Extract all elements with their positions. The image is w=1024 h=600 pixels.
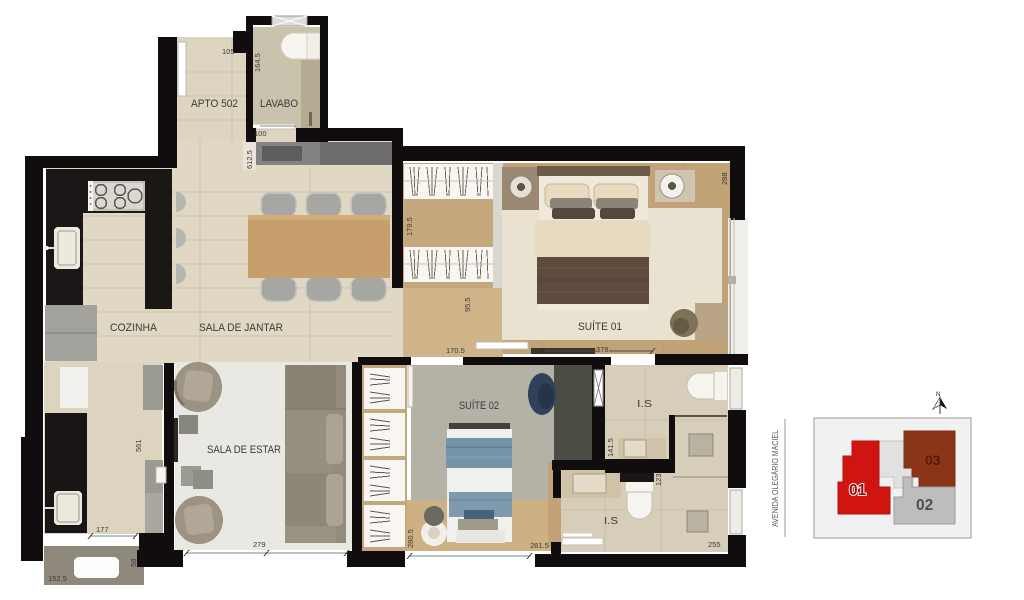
- svg-text:95.5: 95.5: [463, 297, 472, 312]
- svg-text:I.S: I.S: [637, 399, 652, 410]
- svg-text:288: 288: [720, 172, 729, 185]
- svg-text:170.5: 170.5: [446, 346, 465, 355]
- svg-text:177: 177: [96, 525, 109, 534]
- svg-text:123: 123: [654, 473, 663, 486]
- svg-text:SALA DE JANTAR: SALA DE JANTAR: [199, 322, 283, 334]
- svg-text:SUÍTE 01: SUÍTE 01: [578, 320, 622, 333]
- svg-text:COZINHA: COZINHA: [110, 322, 158, 334]
- svg-text:105: 105: [222, 47, 235, 56]
- svg-text:280.5: 280.5: [406, 529, 415, 548]
- svg-text:561: 561: [134, 439, 143, 452]
- svg-text:01: 01: [849, 482, 867, 499]
- svg-text:SUÍTE 02: SUÍTE 02: [459, 399, 499, 412]
- svg-text:SALA DE ESTAR: SALA DE ESTAR: [207, 444, 281, 456]
- svg-text:281.5: 281.5: [530, 541, 549, 550]
- svg-text:179.5: 179.5: [405, 217, 414, 236]
- svg-text:LAVABO: LAVABO: [260, 98, 298, 110]
- svg-text:APTO 502: APTO 502: [191, 98, 238, 110]
- svg-text:152.5: 152.5: [48, 574, 67, 583]
- svg-text:255: 255: [708, 540, 721, 549]
- svg-text:03: 03: [925, 452, 941, 468]
- svg-text:378: 378: [596, 345, 609, 354]
- svg-text:100: 100: [254, 129, 267, 138]
- svg-text:02: 02: [916, 497, 933, 514]
- svg-text:I.S: I.S: [604, 516, 618, 527]
- svg-text:164.5: 164.5: [253, 53, 262, 72]
- svg-text:141.5: 141.5: [606, 438, 615, 457]
- svg-text:58: 58: [129, 559, 138, 567]
- svg-text:279: 279: [253, 540, 266, 549]
- svg-text:612.5: 612.5: [245, 150, 254, 169]
- svg-text:AVENIDA OLEGÁRIO MACIEL: AVENIDA OLEGÁRIO MACIEL: [771, 430, 780, 527]
